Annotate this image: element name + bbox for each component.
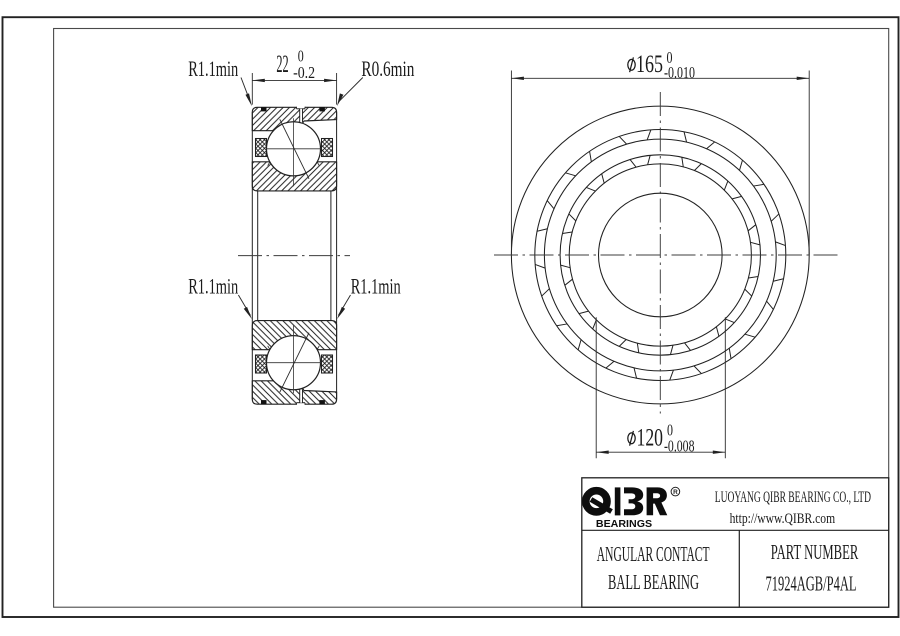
svg-text:http://www.QIBR.com: http://www.QIBR.com (730, 510, 836, 527)
svg-text:R1.1min: R1.1min (188, 274, 238, 299)
svg-text:165: 165 (636, 51, 663, 78)
svg-text:-0.008: -0.008 (664, 437, 695, 456)
svg-text:-0.2: -0.2 (293, 63, 315, 82)
svg-text:ANGULAR CONTACT: ANGULAR CONTACT (597, 542, 710, 566)
svg-text:22: 22 (276, 51, 288, 78)
svg-text:BEARINGS: BEARINGS (596, 519, 653, 530)
svg-text:R1.1min: R1.1min (188, 56, 238, 81)
svg-text:PART NUMBER: PART NUMBER (771, 540, 859, 564)
svg-text:120: 120 (637, 425, 664, 452)
svg-text:R: R (673, 489, 678, 496)
svg-text:-0.010: -0.010 (664, 63, 695, 82)
svg-text:LUOYANG QIBR BEARING CO., LTD: LUOYANG QIBR BEARING CO., LTD (715, 489, 871, 506)
svg-text:R0.6min: R0.6min (361, 56, 414, 81)
svg-text:71924AGB/P4AL: 71924AGB/P4AL (766, 572, 857, 596)
svg-text:BALL BEARING: BALL BEARING (608, 570, 699, 594)
svg-text:R1.1min: R1.1min (351, 274, 401, 299)
